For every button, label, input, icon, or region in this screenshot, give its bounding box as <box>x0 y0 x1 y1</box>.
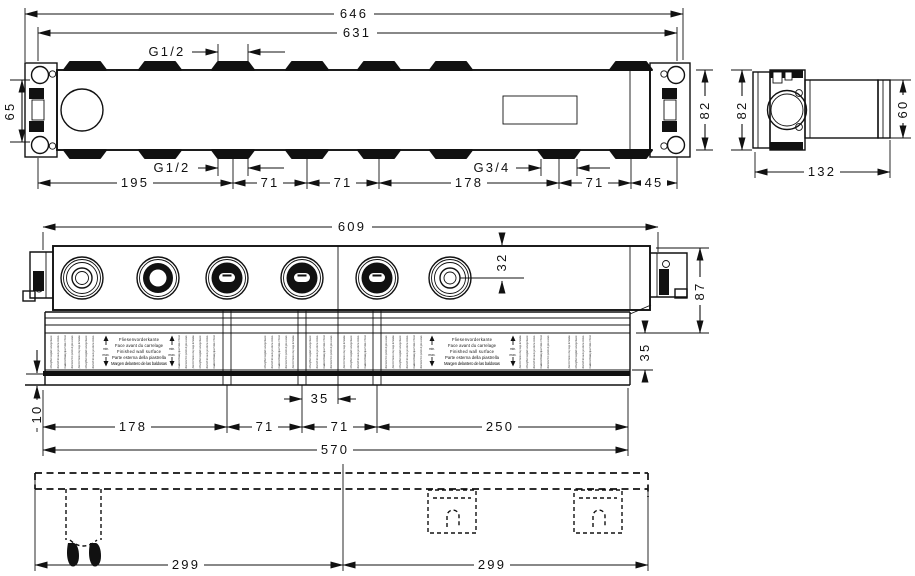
finished-wall-line <box>43 371 630 376</box>
dim-front-250: 250 <box>486 419 514 434</box>
svg-text:Caution! Drain pipe if risk of: Caution! Drain pipe if risk of frost <box>412 335 416 368</box>
dim-housing-height: 60 <box>895 100 910 119</box>
connection-cap <box>61 257 103 299</box>
front-body <box>53 246 650 310</box>
svg-text:Caution! Drain pipe if risk of: Caution! Drain pipe if risk of frost <box>539 335 543 368</box>
svg-text:Caution! Drain pipe if risk of: Caution! Drain pipe if risk of frost <box>63 335 67 368</box>
dim-front-width: 609 <box>338 219 366 234</box>
installation-drawing: 646 631 G1/2 65 82 195 71 71 178 71 45 <box>0 0 915 576</box>
dim-footprint-left: 299 <box>172 557 200 572</box>
svg-text:Attenzione! Con pericolo di ge: Attenzione! Con pericolo di gelo svuotar… <box>384 335 388 368</box>
svg-text:Finished wall surface: Finished wall surface <box>450 349 495 354</box>
svg-text:¡Atención! Vaciar si hay riesg: ¡Atención! Vaciar si hay riesgo de helad… <box>391 335 395 368</box>
svg-text:Margen delantero de las baldos: Margen delantero de las baldosas <box>444 361 500 366</box>
svg-text:Achtung! Bei Frostgefahr Leitu: Achtung! Bei Frostgefahr Leitung entleer… <box>308 335 312 368</box>
hook-foot-left <box>67 543 79 567</box>
svg-text:Attenzione! Con pericolo di ge: Attenzione! Con pericolo di gelo svuotar… <box>70 335 74 368</box>
max-label-a: max. <box>103 353 110 357</box>
svg-text:Attention! En cas de gel vider: Attention! En cas de gel vider la condui… <box>405 335 409 368</box>
footprint-view: 299 299 <box>35 464 648 572</box>
svg-text:Achtung! Bei Frostgefahr Leitu: Achtung! Bei Frostgefahr Leitung entleer… <box>84 335 88 368</box>
svg-text:Margen delantero de las baldos: Margen delantero de las baldosas <box>111 361 167 366</box>
svg-text:Attenzione! Con pericolo di ge: Attenzione! Con pericolo di gelo svuotar… <box>419 335 423 368</box>
svg-text:¡Atención! Vaciar si hay riesg: ¡Atención! Vaciar si hay riesgo de helad… <box>342 335 346 368</box>
dim-spacing-195: 195 <box>121 175 149 190</box>
svg-text:Caution! Drain pipe if risk of: Caution! Drain pipe if risk of frost <box>212 335 216 368</box>
svg-text:Attention! En cas de gel vider: Attention! En cas de gel vider la condui… <box>532 335 536 368</box>
svg-text:Attenzione! Con pericolo di ge: Attenzione! Con pericolo di gelo svuotar… <box>284 335 288 368</box>
front-view: 609 32 87 35 10 35 178 71 <box>23 219 709 457</box>
svg-text:¡Atención! Vaciar si hay riesg: ¡Atención! Vaciar si hay riesgo de helad… <box>191 335 195 368</box>
dim-spacing-71a: 71 <box>261 175 280 190</box>
front-bracket-right <box>650 253 687 298</box>
svg-text:Face avant du carrelage: Face avant du carrelage <box>448 343 497 348</box>
svg-text:Caution! Drain pipe if risk of: Caution! Drain pipe if risk of frost <box>177 335 181 368</box>
dim-depth: 132 <box>808 164 836 179</box>
mounting-bracket-left <box>25 63 57 157</box>
mounting-clip-1 <box>428 490 476 533</box>
svg-text:¡Atención! Vaciar si hay riesg: ¡Atención! Vaciar si hay riesgo de helad… <box>291 335 295 368</box>
svg-text:Fliesenvorderkante: Fliesenvorderkante <box>119 337 160 342</box>
svg-text:Attention! En cas de gel vider: Attention! En cas de gel vider la condui… <box>270 335 274 368</box>
dim-adjust-range: 35 <box>637 343 652 362</box>
svg-text:Achtung! Bei Frostgefahr Leitu: Achtung! Bei Frostgefahr Leitung entleer… <box>574 335 578 368</box>
warning-label-band: Fliesenvorderkante Face avant du carrela… <box>49 335 592 368</box>
dim-port-axis: 32 <box>494 253 509 272</box>
min-label-b: min. <box>429 347 435 351</box>
dim-front-178: 178 <box>119 419 147 434</box>
dim-front-height: 87 <box>692 282 707 301</box>
outlet-ports-bottom <box>64 150 652 158</box>
svg-text:Caution! Drain pipe if risk of: Caution! Drain pipe if risk of frost <box>322 335 326 368</box>
label-plate <box>503 96 577 124</box>
dim-side-height: 82 <box>734 101 749 120</box>
dim-body-width: 631 <box>343 25 371 40</box>
dim-overall-width: 646 <box>340 6 368 21</box>
thermostat-port <box>137 257 179 299</box>
dim-center-offset: 35 <box>311 391 330 406</box>
svg-text:Achtung! Bei Frostgefahr Leitu: Achtung! Bei Frostgefahr Leitung entleer… <box>49 335 53 368</box>
svg-text:Caution! Drain pipe if risk of: Caution! Drain pipe if risk of frost <box>588 335 592 368</box>
mounting-channel <box>66 489 101 567</box>
dim-spacing-71c: 71 <box>586 175 605 190</box>
thread-callout-outlet: G3/4 <box>474 160 511 175</box>
min-label-a2: min. <box>169 347 175 351</box>
dim-body-height: 82 <box>697 101 712 120</box>
svg-text:Fliesenvorderkante: Fliesenvorderkante <box>452 337 493 342</box>
svg-text:Attention! En cas de gel vider: Attention! En cas de gel vider la condui… <box>91 335 95 368</box>
svg-text:Attention! En cas de gel vider: Attention! En cas de gel vider la condui… <box>315 335 319 368</box>
svg-text:Attention! En cas de gel vider: Attention! En cas de gel vider la condui… <box>581 335 585 368</box>
side-housing <box>805 80 878 138</box>
svg-text:Attention! En cas de gel vider: Attention! En cas de gel vider la condui… <box>205 335 209 368</box>
svg-text:Attenzione! Con pericolo di ge: Attenzione! Con pericolo di gelo svuotar… <box>329 335 333 368</box>
svg-text:Achtung! Bei Frostgefahr Leitu: Achtung! Bei Frostgefahr Leitung entleer… <box>349 335 353 368</box>
dim-spacing-71b: 71 <box>334 175 353 190</box>
svg-text:Finished wall surface: Finished wall surface <box>117 349 162 354</box>
svg-text:Achtung! Bei Frostgefahr Leitu: Achtung! Bei Frostgefahr Leitung entleer… <box>398 335 402 368</box>
min-label-a: min. <box>103 347 109 351</box>
svg-text:Parte esterna della piastrella: Parte esterna della piastrella <box>112 355 167 360</box>
svg-text:Attenzione! Con pericolo di ge: Attenzione! Con pericolo di gelo svuotar… <box>184 335 188 368</box>
svg-text:Achtung! Bei Frostgefahr Leitu: Achtung! Bei Frostgefahr Leitung entleer… <box>198 335 202 368</box>
mounting-bracket-right <box>650 63 690 157</box>
thread-callout-bottom: G1/2 <box>154 160 191 175</box>
front-bracket-left <box>23 252 53 301</box>
min-label-b2: min. <box>510 347 516 351</box>
dim-front-71a: 71 <box>256 419 275 434</box>
svg-text:Caution! Drain pipe if risk of: Caution! Drain pipe if risk of frost <box>363 335 367 368</box>
dim-bracket-holes: 65 <box>2 102 17 121</box>
dim-tile-edge-gap: 10 <box>29 405 44 424</box>
mounting-clip-2 <box>574 490 622 533</box>
max-label-b2: max. <box>510 353 517 357</box>
svg-text:¡Atención! Vaciar si hay riesg: ¡Atención! Vaciar si hay riesgo de helad… <box>77 335 81 368</box>
dim-spacing-45: 45 <box>645 175 664 190</box>
max-label-a2: max. <box>169 353 176 357</box>
valve-port-3 <box>356 257 398 299</box>
technical-drawing-page: 646 631 G1/2 65 82 195 71 71 178 71 45 <box>0 0 915 576</box>
side-view: 82 60 132 <box>731 70 911 179</box>
valve-port-2 <box>281 257 323 299</box>
valve-port-1 <box>206 257 248 299</box>
dim-mounting-width: 570 <box>321 442 349 457</box>
svg-text:Parte esterna della piastrella: Parte esterna della piastrella <box>445 355 500 360</box>
svg-text:Attenzione! Con pericolo di ge: Attenzione! Con pericolo di gelo svuotar… <box>546 335 550 368</box>
svg-text:Achtung! Bei Frostgefahr Leitu: Achtung! Bei Frostgefahr Leitung entleer… <box>525 335 529 368</box>
hook-foot-right <box>89 543 101 567</box>
svg-text:¡Atención! Vaciar si hay riesg: ¡Atención! Vaciar si hay riesgo de helad… <box>567 335 571 368</box>
dim-spacing-178: 178 <box>455 175 483 190</box>
svg-text:Caution! Drain pipe if risk of: Caution! Drain pipe if risk of frost <box>277 335 281 368</box>
thread-callout-top: G1/2 <box>149 44 186 59</box>
valve-body <box>57 70 650 150</box>
plan-view: 646 631 G1/2 65 82 195 71 71 178 71 45 <box>2 6 713 190</box>
dim-footprint-right: 299 <box>478 557 506 572</box>
svg-text:¡Atención! Vaciar si hay riesg: ¡Atención! Vaciar si hay riesgo de helad… <box>518 335 522 368</box>
tile-label-block-a: Fliesenvorderkante Face avant du carrela… <box>111 337 167 366</box>
body-opening <box>61 89 103 131</box>
tile-label-block-b: Fliesenvorderkante Face avant du carrela… <box>444 337 500 366</box>
dim-front-71b: 71 <box>331 419 350 434</box>
inlet-ports-top <box>64 62 652 70</box>
svg-text:Face avant du carrelage: Face avant du carrelage <box>115 343 164 348</box>
svg-text:Attention! En cas de gel vider: Attention! En cas de gel vider la condui… <box>56 335 60 368</box>
svg-text:Attention! En cas de gel vider: Attention! En cas de gel vider la condui… <box>356 335 360 368</box>
svg-text:Achtung! Bei Frostgefahr Leitu: Achtung! Bei Frostgefahr Leitung entleer… <box>263 335 267 368</box>
max-label-b: max. <box>429 353 436 357</box>
